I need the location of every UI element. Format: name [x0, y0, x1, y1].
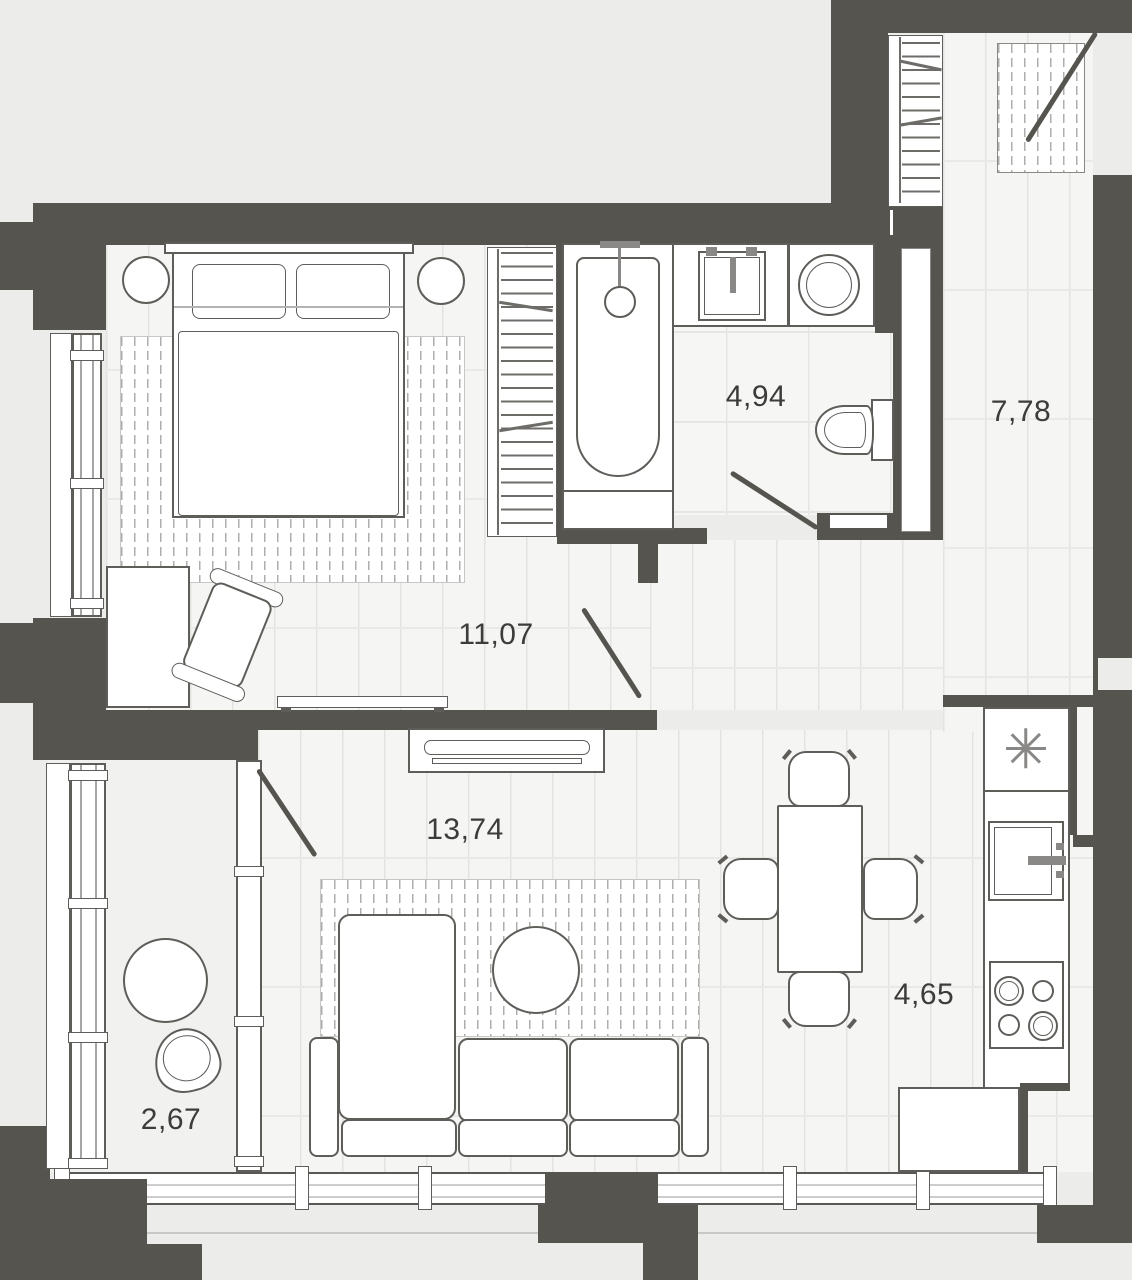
loggia-outer-glazing — [46, 763, 70, 1169]
doormat — [997, 43, 1085, 173]
toilet-tank — [871, 399, 894, 461]
floor-plan: 11,07 4,94 7,78 13,74 4,65 2,67 — [0, 0, 1132, 1280]
bedroom-window-frame — [72, 333, 102, 617]
loggia-partition-tick — [234, 866, 264, 877]
radiator-shelf — [277, 696, 448, 708]
bathtub-drain — [604, 286, 636, 318]
sofa-back-cushion — [458, 1038, 568, 1122]
burner-inner — [1033, 1016, 1053, 1036]
bed-pillow — [296, 264, 390, 319]
sofa-armrest-left — [309, 1037, 339, 1157]
nightstand-left — [122, 256, 170, 304]
wall-left-mid-block — [33, 618, 106, 713]
wall-bottom-pillar — [545, 1172, 658, 1205]
dining-table — [777, 805, 863, 973]
wall-step-1 — [0, 1126, 50, 1280]
ventilation-star-icon — [1004, 728, 1048, 768]
wall-bottom-pillar-wide — [538, 1205, 698, 1243]
wall-top-right-vertical — [831, 0, 888, 245]
window-mullion — [916, 1166, 930, 1210]
window-mullion — [783, 1166, 797, 1210]
burner — [1032, 980, 1054, 1002]
fridge-wall-edge-right — [1020, 1087, 1028, 1172]
kitchen-faucet-knob — [1056, 843, 1064, 850]
loggia-window-tick — [68, 898, 108, 909]
wall-right-notch — [1098, 658, 1132, 690]
sofa-chaise — [338, 914, 456, 1120]
desk — [106, 566, 190, 708]
loggia-glass-line — [95, 765, 97, 1167]
window-mullion — [295, 1166, 309, 1210]
sofa-seat — [458, 1119, 568, 1157]
wall-left-mid-ledge — [0, 623, 33, 703]
room-label-bathroom: 4,94 — [696, 382, 816, 412]
fridge — [898, 1087, 1020, 1172]
bedroom-wardrobe-rails — [501, 252, 553, 532]
room-label-living-room: 13,74 — [405, 815, 525, 845]
loggia-table — [123, 938, 208, 1023]
wall-left-upper-ledge — [0, 222, 33, 290]
sofa-armrest-right — [681, 1037, 709, 1157]
bedroom-wardrobe-divider — [497, 249, 499, 535]
kitchen-faucet — [1028, 856, 1066, 865]
wall-washer-nook — [875, 243, 893, 333]
burner — [998, 1014, 1020, 1036]
sofa-seat — [341, 1119, 457, 1157]
wall-step-2 — [50, 1179, 147, 1280]
loggia-window-frame — [70, 763, 106, 1169]
shaft-duct — [901, 248, 931, 532]
room-label-kitchen: 4,65 — [864, 980, 984, 1010]
wall-bedroom-bottom — [33, 710, 657, 730]
sofa-seat — [569, 1119, 680, 1157]
kitchen-faucet-knob — [1056, 871, 1064, 878]
tv-base — [432, 758, 582, 764]
wall-counter-side — [1070, 707, 1077, 835]
bedroom-window-tick — [70, 598, 104, 609]
window-mullion — [1043, 1166, 1057, 1210]
wall-right — [1093, 175, 1132, 1243]
wall-bottom-pillar-leg — [643, 1243, 698, 1280]
wall-kitchen-top — [943, 695, 1093, 707]
bathtub-deck-line — [564, 490, 672, 492]
room-label-bedroom: 11,07 — [436, 620, 556, 650]
loggia-partition-tick — [234, 1016, 264, 1027]
kitchen-counter-divider — [985, 790, 1068, 792]
bedroom-window-tick — [70, 478, 104, 489]
bed-blanket-fold — [174, 306, 403, 308]
tv-screen — [424, 740, 590, 755]
bathtub-faucet-stem — [618, 247, 621, 289]
window-mullion — [418, 1166, 432, 1210]
wall-bottom-right-corner — [1037, 1205, 1132, 1243]
room-label-loggia: 2,67 — [111, 1105, 231, 1135]
room-label-hallway: 7,78 — [961, 397, 1081, 427]
radiator-foot — [281, 708, 291, 712]
wall-step-3 — [147, 1244, 202, 1280]
washing-machine-drum — [806, 262, 852, 308]
radiator-foot — [434, 708, 444, 712]
wall-bath-bottom-left — [557, 528, 707, 544]
nightstand-right — [417, 257, 465, 305]
bathroom-door-opening — [830, 515, 887, 528]
loggia-window-tick — [68, 1158, 108, 1169]
dining-chair-bottom — [788, 971, 850, 1027]
bed-mattress — [178, 331, 399, 516]
toilet-bowl-inner — [824, 412, 866, 448]
dining-chair-right — [863, 858, 918, 920]
washbasin-knob — [706, 247, 717, 256]
wall-bedroom-bottom-thick — [33, 730, 258, 760]
wall-top — [33, 203, 831, 245]
wall-left-upper-block — [33, 203, 106, 330]
sofa-back-cushion — [569, 1038, 679, 1122]
washbasin-knob — [746, 247, 757, 256]
corridor-floor — [650, 540, 943, 710]
loggia-glass-line — [80, 765, 82, 1167]
bedroom-window-glass-line — [92, 335, 94, 615]
bedroom-window-glass-line — [80, 335, 82, 615]
wall-top-band-right — [888, 0, 1132, 33]
bedroom-window-tick — [70, 350, 104, 361]
wall-bedroom-door-stub — [638, 542, 658, 583]
loggia-partition-tick — [234, 1156, 264, 1167]
loggia-partition-glazing — [236, 760, 262, 1172]
bedroom-window-sill — [50, 333, 72, 617]
wall-counter-stub — [1073, 835, 1093, 847]
dining-chair-left — [723, 858, 779, 920]
dining-chair-top — [788, 751, 850, 807]
bed-pillow — [192, 264, 286, 319]
coffee-table — [492, 926, 580, 1014]
loggia-window-tick — [68, 1032, 108, 1043]
loggia-window-tick — [68, 770, 108, 781]
burner-inner — [999, 981, 1019, 1001]
washbasin-faucet — [730, 257, 736, 293]
